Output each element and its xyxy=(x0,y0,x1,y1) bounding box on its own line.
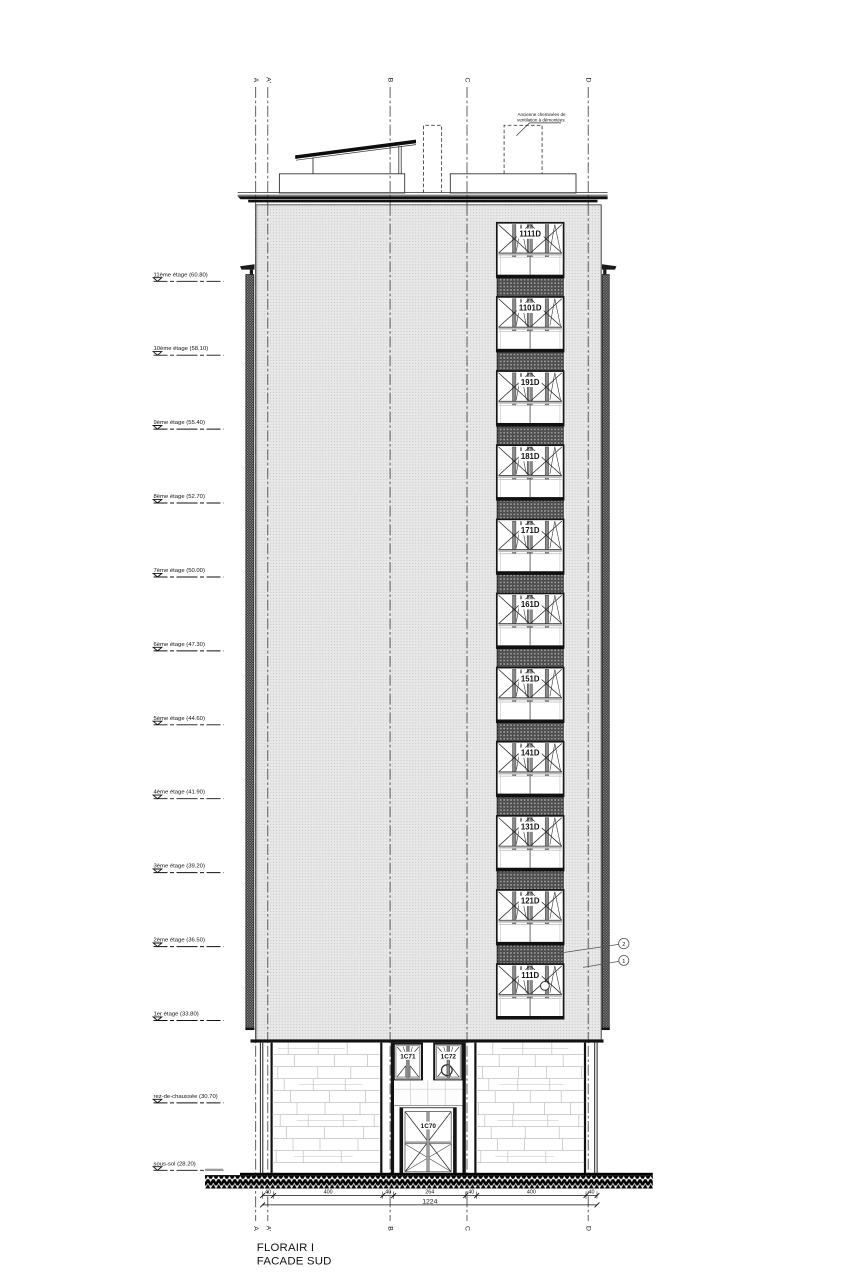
svg-text:D: D xyxy=(585,78,592,83)
svg-text:B: B xyxy=(387,1226,394,1231)
svg-text:191D: 191D xyxy=(521,378,540,387)
svg-text:264: 264 xyxy=(425,1190,434,1196)
svg-text:1111D: 1111D xyxy=(519,230,541,239)
svg-text:1C71: 1C71 xyxy=(400,1053,416,1060)
svg-text:1101D: 1101D xyxy=(519,304,542,313)
svg-text:141D: 141D xyxy=(521,748,540,757)
svg-text:40: 40 xyxy=(385,1190,391,1196)
svg-text:181D: 181D xyxy=(521,452,540,461)
svg-text:121D: 121D xyxy=(521,897,540,906)
svg-text:A: A xyxy=(252,1226,259,1231)
svg-text:111D: 111D xyxy=(521,971,539,980)
svg-text:B: B xyxy=(387,78,394,83)
svg-text:rez-de-chaussée (30.70): rez-de-chaussée (30.70) xyxy=(154,1094,218,1100)
svg-text:40: 40 xyxy=(468,1190,474,1196)
svg-text:161D: 161D xyxy=(521,600,540,609)
svg-text:D: D xyxy=(585,1226,592,1231)
svg-text:A': A' xyxy=(264,77,271,83)
svg-text:C: C xyxy=(464,78,471,83)
svg-text:171D: 171D xyxy=(521,526,540,535)
svg-text:2: 2 xyxy=(622,942,625,948)
svg-text:Ancienne cheminées de: Ancienne cheminées de xyxy=(517,112,566,117)
svg-text:1: 1 xyxy=(622,959,625,965)
svg-text:A': A' xyxy=(264,1226,271,1232)
svg-text:A: A xyxy=(252,78,259,83)
svg-text:131D: 131D xyxy=(521,823,540,832)
svg-text:40: 40 xyxy=(589,1190,595,1196)
svg-text:C: C xyxy=(464,1226,471,1231)
svg-text:1C70: 1C70 xyxy=(421,1123,437,1130)
svg-text:400: 400 xyxy=(324,1190,333,1196)
svg-text:1C72: 1C72 xyxy=(441,1053,457,1060)
svg-text:FLORAIR I: FLORAIR I xyxy=(257,1242,315,1254)
svg-text:1224: 1224 xyxy=(422,1198,437,1205)
svg-text:40: 40 xyxy=(265,1190,271,1196)
svg-text:151D: 151D xyxy=(521,674,540,683)
svg-text:FACADE SUD: FACADE SUD xyxy=(257,1255,332,1267)
svg-text:ventilation à démontées.: ventilation à démontées. xyxy=(517,117,566,122)
svg-text:400: 400 xyxy=(527,1190,536,1196)
